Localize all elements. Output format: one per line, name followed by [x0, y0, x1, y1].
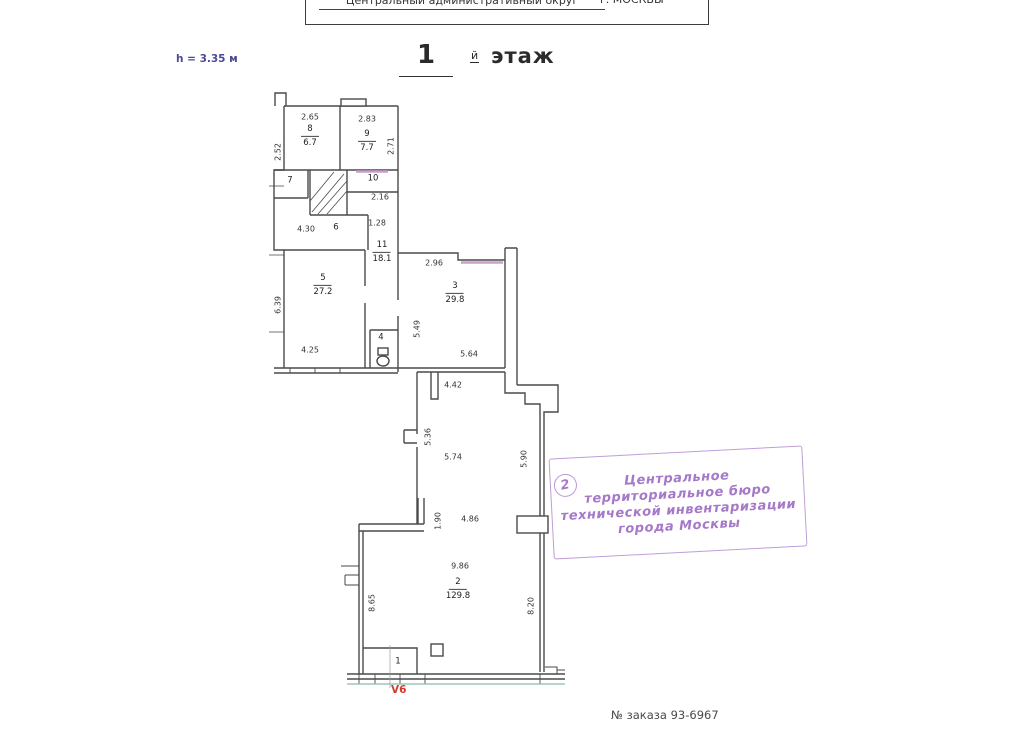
floorplan-walls-drawing — [0, 0, 1023, 738]
entry-mark-v6: V6 — [391, 684, 406, 696]
order-number: № заказа 93-6967 — [611, 708, 719, 722]
stamp-number-badge: 2 — [552, 472, 579, 499]
bti-stamp: 2 Центральное территориальное бюро техни… — [549, 445, 808, 559]
scanned-floorplan-page: Центральный административный округ г. МО… — [0, 0, 1023, 738]
